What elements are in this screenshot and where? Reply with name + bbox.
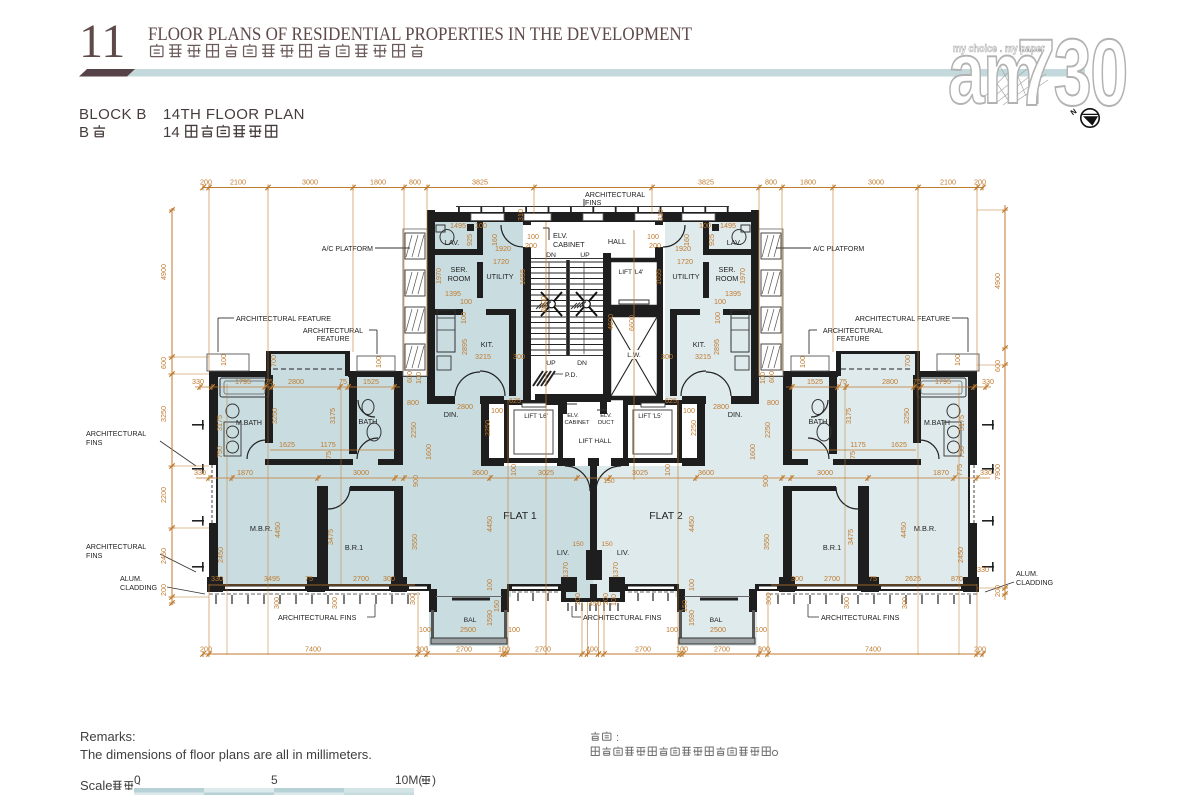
svg-text:800: 800 [407,398,419,407]
svg-text:100: 100 [508,625,520,634]
svg-text:300: 300 [408,593,417,605]
svg-text:3000: 3000 [302,178,318,187]
svg-text:100: 100 [509,464,518,476]
svg-text:1970: 1970 [738,268,747,284]
svg-text:3175: 3175 [957,415,966,431]
svg-text:A/C PLATFORM: A/C PLATFORM [813,246,864,253]
svg-text:100: 100 [687,579,696,591]
svg-text:200: 200 [200,178,212,187]
svg-text:ARCHITECTURAL FEATURE: ARCHITECTURAL FEATURE [855,314,950,323]
svg-text:3475: 3475 [326,529,335,545]
svg-text:1720: 1720 [677,257,693,266]
svg-text:LIFT 'L6': LIFT 'L6' [524,413,548,420]
svg-text:200: 200 [200,645,212,654]
svg-text:4450: 4450 [273,522,282,538]
svg-text:2200: 2200 [159,487,168,503]
svg-text:300: 300 [764,593,773,605]
svg-text:ARCHITECTURAL FEATURE: ARCHITECTURAL FEATURE [236,314,331,323]
svg-text:150: 150 [680,600,689,612]
svg-text:150: 150 [603,478,615,485]
svg-text:7400: 7400 [865,645,881,654]
svg-text:LIV.: LIV. [617,548,629,557]
svg-text:100: 100 [755,625,767,634]
svg-text:300: 300 [900,597,909,609]
svg-text:75: 75 [869,574,877,583]
svg-text:ARCHITECTURAL: ARCHITECTURAL [86,542,146,551]
svg-text:ARCHITECTURAL FINS: ARCHITECTURAL FINS [278,613,357,622]
svg-text:3175: 3175 [215,415,224,431]
svg-text:3000: 3000 [817,468,833,477]
svg-text:3000: 3000 [353,468,369,477]
svg-text:2700: 2700 [824,574,840,583]
svg-text:100: 100 [485,579,494,591]
svg-text:300: 300 [513,352,525,361]
svg-text:3025: 3025 [632,468,648,477]
svg-text:800: 800 [765,178,777,187]
svg-text:900: 900 [761,475,770,487]
svg-text:600: 600 [993,360,1002,372]
svg-text:450: 450 [589,599,601,608]
svg-text:100: 100 [475,221,487,230]
svg-text:300: 300 [383,574,395,583]
svg-text:75: 75 [324,451,333,459]
svg-text:FINS: FINS [585,198,602,207]
svg-text:10M(: 10M( [395,773,422,787]
svg-text:925: 925 [465,234,474,246]
svg-text:100: 100 [647,232,659,241]
svg-text:870: 870 [951,574,963,583]
svg-text:100: 100 [219,354,228,366]
svg-text:800: 800 [409,178,421,187]
svg-text:75: 75 [305,574,313,583]
svg-text:100: 100 [460,297,472,306]
svg-text:2800: 2800 [288,377,304,386]
svg-text:2700: 2700 [635,645,651,654]
svg-text:300: 300 [330,597,339,609]
svg-text:100: 100 [683,406,695,415]
svg-text:7900: 7900 [993,464,1002,480]
svg-text:75: 75 [339,377,347,386]
svg-text:LIFT 'L5': LIFT 'L5' [638,413,662,420]
svg-text:900: 900 [411,475,420,487]
svg-text:2450: 2450 [956,547,965,563]
svg-text:75: 75 [913,377,921,386]
svg-text:330: 330 [192,377,204,386]
svg-text:SER.: SER. [450,265,467,274]
svg-text:700: 700 [269,355,278,367]
svg-text:6800: 6800 [539,296,548,312]
svg-text:200: 200 [974,178,986,187]
svg-text:2250: 2250 [483,420,492,436]
svg-text:DIN.: DIN. [728,410,743,419]
svg-text:DN: DN [546,252,556,259]
svg-text:200: 200 [573,593,582,605]
svg-text:2250: 2250 [689,420,698,436]
svg-text:FLAT 1: FLAT 1 [503,510,537,522]
svg-text:5: 5 [271,773,278,787]
svg-text:4900: 4900 [159,264,168,280]
svg-text:2500: 2500 [460,625,476,634]
svg-text:BATH: BATH [359,417,378,426]
svg-text:200: 200 [974,645,986,654]
svg-text:LIFT HALL: LIFT HALL [579,438,612,445]
svg-text:14TH FLOOR PLAN: 14TH FLOOR PLAN [163,106,305,123]
svg-text:75: 75 [839,377,847,386]
svg-text:2700: 2700 [353,574,369,583]
svg-text:330: 330 [982,377,994,386]
svg-text:1800: 1800 [800,178,816,187]
svg-text:1795: 1795 [235,377,251,386]
svg-text:3825: 3825 [472,178,488,187]
svg-text:2250: 2250 [409,422,418,438]
svg-text:my choice . my paper: my choice . my paper [953,43,1045,55]
svg-text:4450: 4450 [485,516,494,532]
svg-text:BAL: BAL [464,617,477,624]
svg-text:100: 100 [713,312,722,324]
svg-text:1370: 1370 [611,562,620,578]
svg-text:330: 330 [211,574,223,583]
svg-text:ELV.: ELV. [600,413,612,419]
svg-text:200: 200 [525,241,537,250]
svg-text:UP: UP [580,252,590,259]
svg-text:ELV.: ELV. [553,231,568,240]
svg-text:600: 600 [767,371,776,383]
svg-text:200: 200 [159,584,168,596]
svg-text:Scale: Scale [80,778,113,793]
svg-text:3000: 3000 [868,178,884,187]
svg-text:CABINET: CABINET [564,420,590,426]
svg-text:100: 100 [798,356,807,368]
svg-text:1655: 1655 [654,269,663,285]
svg-text:BAL: BAL [710,617,723,624]
svg-text:ALUM.: ALUM. [120,574,142,583]
svg-text:2800: 2800 [882,377,898,386]
svg-text:ROOM: ROOM [716,274,739,283]
svg-text:LIFT 'L4': LIFT 'L4' [619,269,644,276]
svg-text:CLADDING: CLADDING [120,583,158,592]
svg-text:3600: 3600 [698,468,714,477]
svg-text:100: 100 [459,312,468,324]
svg-text:1920: 1920 [675,244,691,253]
svg-text:ARCHITECTURAL: ARCHITECTURAL [86,429,146,438]
svg-text:1175: 1175 [850,440,865,449]
svg-text:M.B.R.: M.B.R. [914,524,936,533]
svg-text:3550: 3550 [410,534,419,550]
svg-text:Remarks:: Remarks: [80,729,136,744]
svg-text:1920: 1920 [495,244,511,253]
svg-text:1870: 1870 [237,468,253,477]
svg-text:3175: 3175 [844,408,853,424]
svg-text:100: 100 [491,406,503,415]
svg-text:1625: 1625 [279,440,295,449]
svg-text:1525: 1525 [807,377,823,386]
svg-text:2895: 2895 [460,339,469,355]
svg-text:FEATURE: FEATURE [836,334,869,343]
svg-text:3475: 3475 [846,529,855,545]
svg-text:625: 625 [509,396,521,405]
svg-text:UTILITY: UTILITY [486,272,513,281]
svg-text:300: 300 [791,574,803,583]
svg-text:2500: 2500 [710,625,726,634]
svg-text:1175: 1175 [320,440,335,449]
svg-text:1495: 1495 [450,221,466,230]
svg-text:300: 300 [842,597,851,609]
svg-text:KIT.: KIT. [481,340,494,349]
svg-text:330: 330 [977,565,989,574]
svg-text:M.BATH: M.BATH [924,420,950,427]
svg-text:BLOCK B: BLOCK B [79,106,147,123]
svg-text:2100: 2100 [940,178,956,187]
svg-text:LAV.: LAV. [727,238,742,247]
svg-text:FINS: FINS [86,438,103,447]
svg-text:7400: 7400 [305,645,321,654]
svg-text:600: 600 [159,357,168,369]
svg-text:775: 775 [955,464,964,476]
svg-text:2625: 2625 [905,574,921,583]
svg-text:100: 100 [419,625,431,634]
svg-text:ARCHITECTURAL FINS: ARCHITECTURAL FINS [821,613,900,622]
svg-text:1495: 1495 [720,221,736,230]
svg-text:800: 800 [767,398,779,407]
svg-text:2700: 2700 [714,645,730,654]
svg-text:DIN.: DIN. [444,410,459,419]
svg-text:4450: 4450 [899,522,908,538]
svg-text:100: 100 [714,297,726,306]
svg-text:1655: 1655 [518,269,527,285]
svg-text:11: 11 [79,15,125,68]
svg-text:150: 150 [601,541,613,548]
svg-text:750: 750 [957,446,966,458]
svg-text:1625: 1625 [891,440,907,449]
svg-text:ARCHITECTURAL FINS: ARCHITECTURAL FINS [583,613,662,622]
svg-text:6600: 6600 [627,315,636,331]
svg-text:1800: 1800 [370,178,386,187]
svg-text:2450: 2450 [159,548,168,564]
svg-text:2100: 2100 [230,178,246,187]
svg-text:330: 330 [980,468,992,477]
svg-text:DUCT: DUCT [598,420,615,426]
svg-text:CLADDING: CLADDING [1016,578,1054,587]
svg-text:M.B.R.: M.B.R. [250,524,272,533]
svg-text:3250: 3250 [159,406,168,422]
svg-text:1970: 1970 [434,268,443,284]
svg-text:310: 310 [516,209,525,221]
svg-text:300: 300 [661,352,673,361]
svg-text:1870: 1870 [933,468,949,477]
svg-text:330: 330 [194,468,206,477]
svg-text:1395: 1395 [725,289,741,298]
svg-text:M.BATH: M.BATH [236,420,262,427]
svg-text:SER.: SER. [718,265,735,274]
svg-text:3250: 3250 [902,408,911,424]
svg-text:2800: 2800 [457,402,473,411]
svg-text:3495: 3495 [264,574,280,583]
svg-text:DN: DN [577,360,587,367]
svg-text:LIV.: LIV. [557,548,569,557]
svg-text:150: 150 [572,541,584,548]
svg-text:ALUM.: ALUM. [1016,569,1038,578]
svg-text:100: 100 [699,221,711,230]
svg-text:B.R.1: B.R.1 [345,543,363,552]
svg-text:100: 100 [527,232,539,241]
svg-text:2250: 2250 [763,422,772,438]
svg-text:100: 100 [663,464,672,476]
svg-text:200: 200 [649,241,661,250]
svg-text:75: 75 [265,377,273,386]
svg-text:100: 100 [953,354,962,366]
svg-text:3550: 3550 [762,534,771,550]
svg-text:3175: 3175 [328,408,337,424]
svg-text:KIT.: KIT. [693,340,706,349]
svg-text:925: 925 [707,234,716,246]
svg-text:LAV.: LAV. [445,238,460,247]
svg-text:700: 700 [903,355,912,367]
svg-text:): ) [432,773,436,787]
svg-text:150: 150 [492,600,501,612]
svg-text:100: 100 [374,356,383,368]
svg-text:1395: 1395 [445,289,461,298]
svg-text:1720: 1720 [493,257,509,266]
svg-text:FLOOR PLANS OF RESIDENTIAL PRO: FLOOR PLANS OF RESIDENTIAL PROPERTIES IN… [148,24,692,45]
svg-text:BATH: BATH [809,417,828,426]
svg-text:1370: 1370 [561,562,570,578]
svg-text:4900: 4900 [993,273,1002,289]
svg-text:0: 0 [134,773,141,787]
svg-text:P.D.: P.D. [565,372,577,379]
svg-text:750: 750 [215,446,224,458]
svg-text:ELV.: ELV. [567,413,579,419]
svg-text:100: 100 [758,372,767,384]
svg-text:3825: 3825 [698,178,714,187]
svg-text:A/C PLATFORM: A/C PLATFORM [322,246,373,253]
svg-text:3600: 3600 [472,468,488,477]
svg-text:2700: 2700 [456,645,472,654]
svg-text:2895: 2895 [712,339,721,355]
svg-text:2450: 2450 [216,547,225,563]
svg-text:1600: 1600 [424,444,433,460]
svg-text:100: 100 [414,372,423,384]
svg-text:2800: 2800 [713,402,729,411]
svg-text:300: 300 [272,597,281,609]
svg-text:3215: 3215 [695,352,711,361]
svg-text:4450: 4450 [687,516,696,532]
svg-text:310: 310 [656,209,665,221]
svg-text:625: 625 [665,396,677,405]
svg-text:CABINET: CABINET [553,240,585,249]
svg-text:600: 600 [405,371,414,383]
svg-text:14: 14 [163,124,180,141]
svg-text::: : [616,732,619,744]
svg-text:UTILITY: UTILITY [672,272,699,281]
svg-text:100: 100 [609,594,618,606]
svg-text:2700: 2700 [535,645,551,654]
svg-text:ROOM: ROOM [448,274,471,283]
svg-text:HALL: HALL [608,237,626,246]
svg-text:3250: 3250 [270,408,279,424]
svg-text:FEATURE: FEATURE [316,334,349,343]
svg-text:UP: UP [546,360,556,367]
svg-text:1600: 1600 [748,444,757,460]
svg-text:200: 200 [993,585,1002,597]
svg-text:B: B [79,124,89,141]
svg-text:4600: 4600 [606,314,615,330]
svg-text:75: 75 [848,451,857,459]
svg-text:3215: 3215 [475,352,491,361]
svg-text:1795: 1795 [935,377,951,386]
svg-text:1525: 1525 [363,377,379,386]
svg-text:100: 100 [666,625,678,634]
svg-text:The dimensions of floor plans: The dimensions of floor plans are all in… [80,747,372,762]
svg-text:B.R.1: B.R.1 [823,543,841,552]
svg-text:FINS: FINS [86,551,103,560]
